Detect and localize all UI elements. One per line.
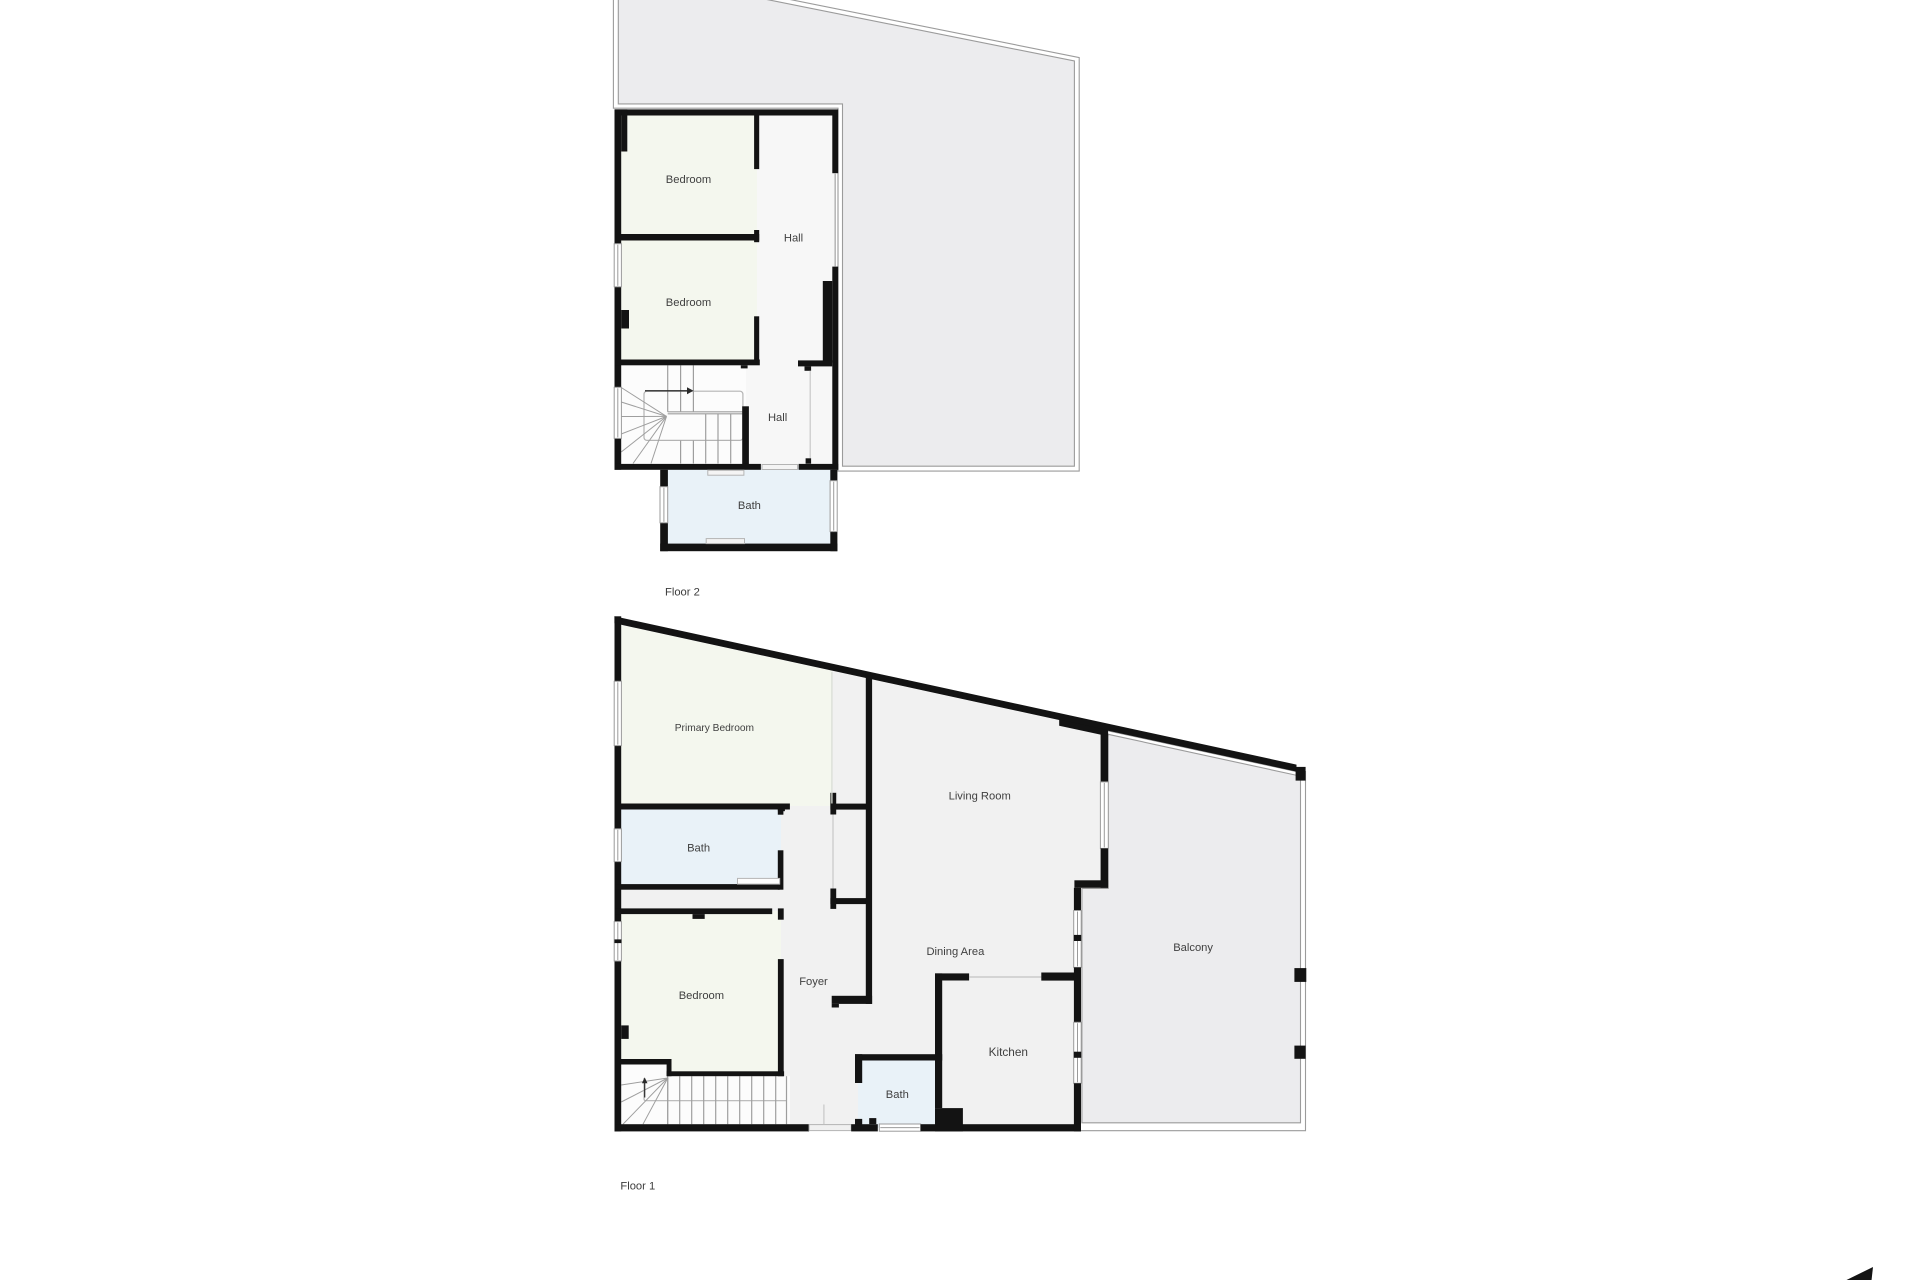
svg-text:Floor 2: Floor 2 bbox=[665, 586, 700, 598]
svg-text:Kitchen: Kitchen bbox=[989, 1045, 1028, 1059]
svg-text:Bedroom: Bedroom bbox=[679, 990, 724, 1002]
svg-text:Bedroom: Bedroom bbox=[666, 297, 711, 309]
svg-text:Hall: Hall bbox=[768, 412, 787, 424]
svg-text:Balcony: Balcony bbox=[1173, 942, 1213, 954]
svg-text:Dining Area: Dining Area bbox=[926, 946, 985, 958]
svg-text:Hall: Hall bbox=[784, 233, 803, 245]
svg-text:Bath: Bath bbox=[687, 843, 710, 855]
svg-text:Foyer: Foyer bbox=[799, 976, 828, 988]
svg-text:Living Room: Living Room bbox=[949, 790, 1011, 802]
svg-text:Primary Bedroom: Primary Bedroom bbox=[675, 723, 754, 734]
svg-text:Bath: Bath bbox=[886, 1089, 909, 1101]
svg-text:Floor 1: Floor 1 bbox=[620, 1181, 655, 1193]
svg-text:Bedroom: Bedroom bbox=[666, 174, 711, 186]
svg-text:Bath: Bath bbox=[738, 500, 761, 512]
